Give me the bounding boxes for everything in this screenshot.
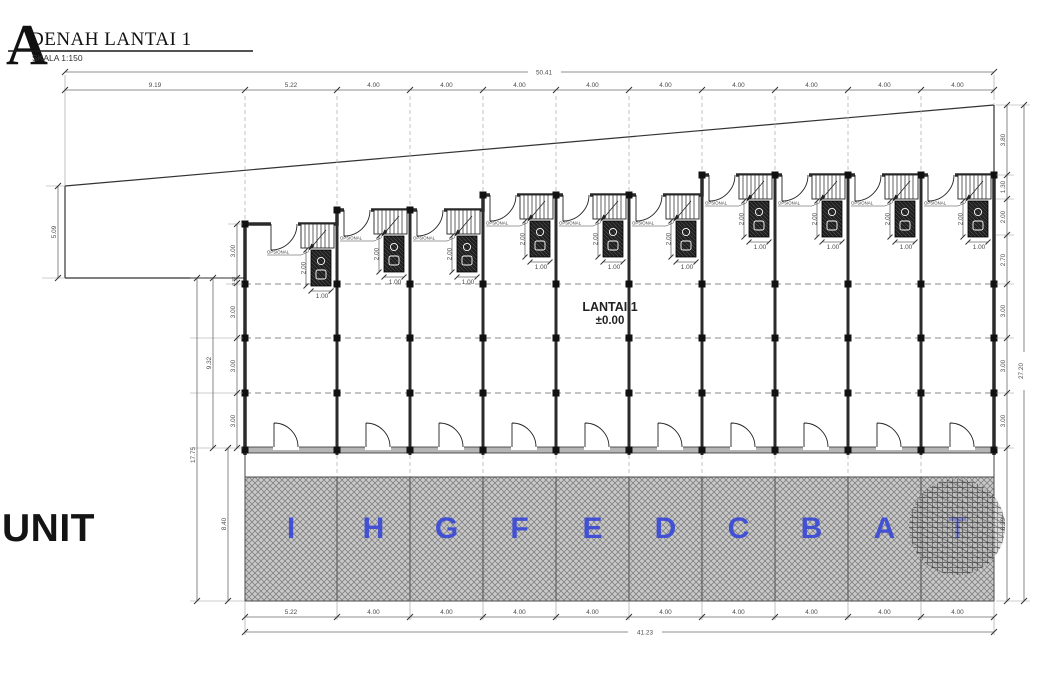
drawing-title: DENAH LANTAI 1 — [30, 29, 192, 50]
structure-grid — [245, 96, 994, 477]
lower-extension-lines — [337, 455, 921, 477]
left-chain-dim-0: 3.00 — [230, 244, 237, 257]
bottom-overall-dim: 41.23 — [637, 630, 653, 637]
bottom-dim-0: 5.22 — [285, 609, 298, 616]
top-dim-0: 9.19 — [149, 82, 162, 89]
left-upper-dim: 9.32 — [206, 356, 213, 369]
unit-letter-H: H — [363, 512, 385, 545]
unit-letter-E: E — [582, 512, 602, 545]
top-dim-6: 4.00 — [659, 82, 672, 89]
unit-motif-D — [632, 192, 699, 271]
right-chain-dim-6: 3.00 — [1000, 414, 1007, 427]
top-overall-extensions — [65, 75, 994, 186]
top-dim-9: 4.00 — [878, 82, 891, 89]
rear-door-T — [949, 423, 975, 450]
unit-letter-B: B — [801, 512, 823, 545]
top-dim-10: 4.00 — [951, 82, 964, 89]
bottom-dim-8: 4.00 — [878, 609, 891, 616]
right-chain-dim-4: 3.00 — [1000, 304, 1007, 317]
right-chain-dim-1: 1.30 — [1000, 180, 1007, 193]
unit-motif-I — [267, 221, 334, 300]
bottom-dim-3: 4.00 — [513, 609, 526, 616]
top-dim-1: 5.22 — [285, 82, 298, 89]
unit-letter-A: A — [874, 512, 896, 545]
rear-door-F — [511, 423, 537, 450]
left-chain-dim-2: 3.00 — [230, 305, 237, 318]
left-offset-dim: 5.09 — [51, 225, 58, 238]
rear-door-I — [273, 423, 299, 450]
watermark-stamp-overlay — [909, 479, 1005, 575]
top-overall-dim: 50.41 — [536, 70, 552, 77]
top-dim-5: 4.00 — [586, 82, 599, 89]
bottom-dim-6: 4.00 — [732, 609, 745, 616]
unit-letter-I: I — [287, 512, 295, 545]
left-chain-dim-4: 3.00 — [230, 414, 237, 427]
bottom-dim-9: 4.00 — [951, 609, 964, 616]
unit-motif-G — [413, 207, 480, 286]
unit-motif-A — [851, 172, 918, 251]
rear-door-A — [876, 423, 902, 450]
unit-motif-F — [486, 192, 553, 271]
rear-door-C — [730, 423, 756, 450]
unit-motif-C — [705, 172, 772, 251]
unit-letter-C: C — [728, 512, 750, 545]
unit-letter-F: F — [510, 512, 528, 545]
unit-motif-E — [559, 192, 626, 271]
bottom-dim-2: 4.00 — [440, 609, 453, 616]
top-dim-8: 4.00 — [805, 82, 818, 89]
right-chain-dim-3: 2.70 — [1000, 253, 1007, 266]
rear-doors — [273, 423, 975, 450]
unit-letter-D: D — [655, 512, 677, 545]
unit-motif-T — [924, 172, 991, 251]
bottom-dim-1: 4.00 — [367, 609, 380, 616]
right-chain-dim-2: 2.00 — [1000, 210, 1007, 223]
unit-side-label: UNIT — [2, 507, 95, 550]
floorplan-canvas: 2.00 1.00 OPSIONAL A DENAH LANTAI 1 SKAL… — [0, 0, 1045, 679]
bottom-extensions — [245, 601, 994, 635]
rear-door-B — [803, 423, 829, 450]
right-chain-dim-5: 3.00 — [1000, 359, 1007, 372]
top-dimensions: 50.41 9.19 5.22 4.00 4.00 4.00 4.00 4.00… — [62, 64, 997, 187]
rear-door-E — [584, 423, 610, 450]
top-dim-3: 4.00 — [440, 82, 453, 89]
right-chain-dim-7: 8.39 — [1000, 517, 1007, 530]
unit-motif-H — [340, 207, 407, 286]
floor-elevation: ±0.00 — [596, 315, 625, 327]
top-dim-2: 4.00 — [367, 82, 380, 89]
left-chain-dim-3: 3.00 — [230, 359, 237, 372]
left-total-dim: 17.75 — [190, 447, 197, 463]
floorplan-page: 2.00 1.00 OPSIONAL A DENAH LANTAI 1 SKAL… — [0, 0, 1045, 679]
unit-letter-G: G — [435, 512, 458, 545]
rear-wall-stubs — [245, 455, 994, 477]
bottom-dim-4: 4.00 — [586, 609, 599, 616]
right-dimensions: 3.80 1.30 2.00 2.70 3.00 3.00 3.00 8.39 … — [996, 102, 1030, 604]
bottom-dimensions: 5.22 4.00 4.00 4.00 4.00 4.00 4.00 4.00 … — [242, 601, 997, 637]
rear-door-D — [657, 423, 683, 450]
right-chain-dim-0: 3.80 — [1000, 133, 1007, 146]
floor-name: LANTAI 1 — [582, 300, 637, 314]
bottom-dim-7: 4.00 — [805, 609, 818, 616]
title-block: A DENAH LANTAI 1 SKALA 1:150 — [6, 12, 253, 77]
left-band-dim: 8.40 — [221, 517, 228, 530]
right-overall-dim: 27.20 — [1018, 363, 1025, 379]
rear-door-G — [438, 423, 464, 450]
unit-band: I H G F E D C B A T — [245, 477, 1005, 601]
left-chain-dim-1: 0.32 — [231, 276, 236, 285]
bottom-dim-5: 4.00 — [659, 609, 672, 616]
top-dim-4: 4.00 — [513, 82, 526, 89]
unit-motif-B — [778, 172, 845, 251]
top-dim-7: 4.00 — [732, 82, 745, 89]
scale-label: SKALA 1:150 — [32, 53, 83, 63]
rear-door-H — [365, 423, 391, 450]
